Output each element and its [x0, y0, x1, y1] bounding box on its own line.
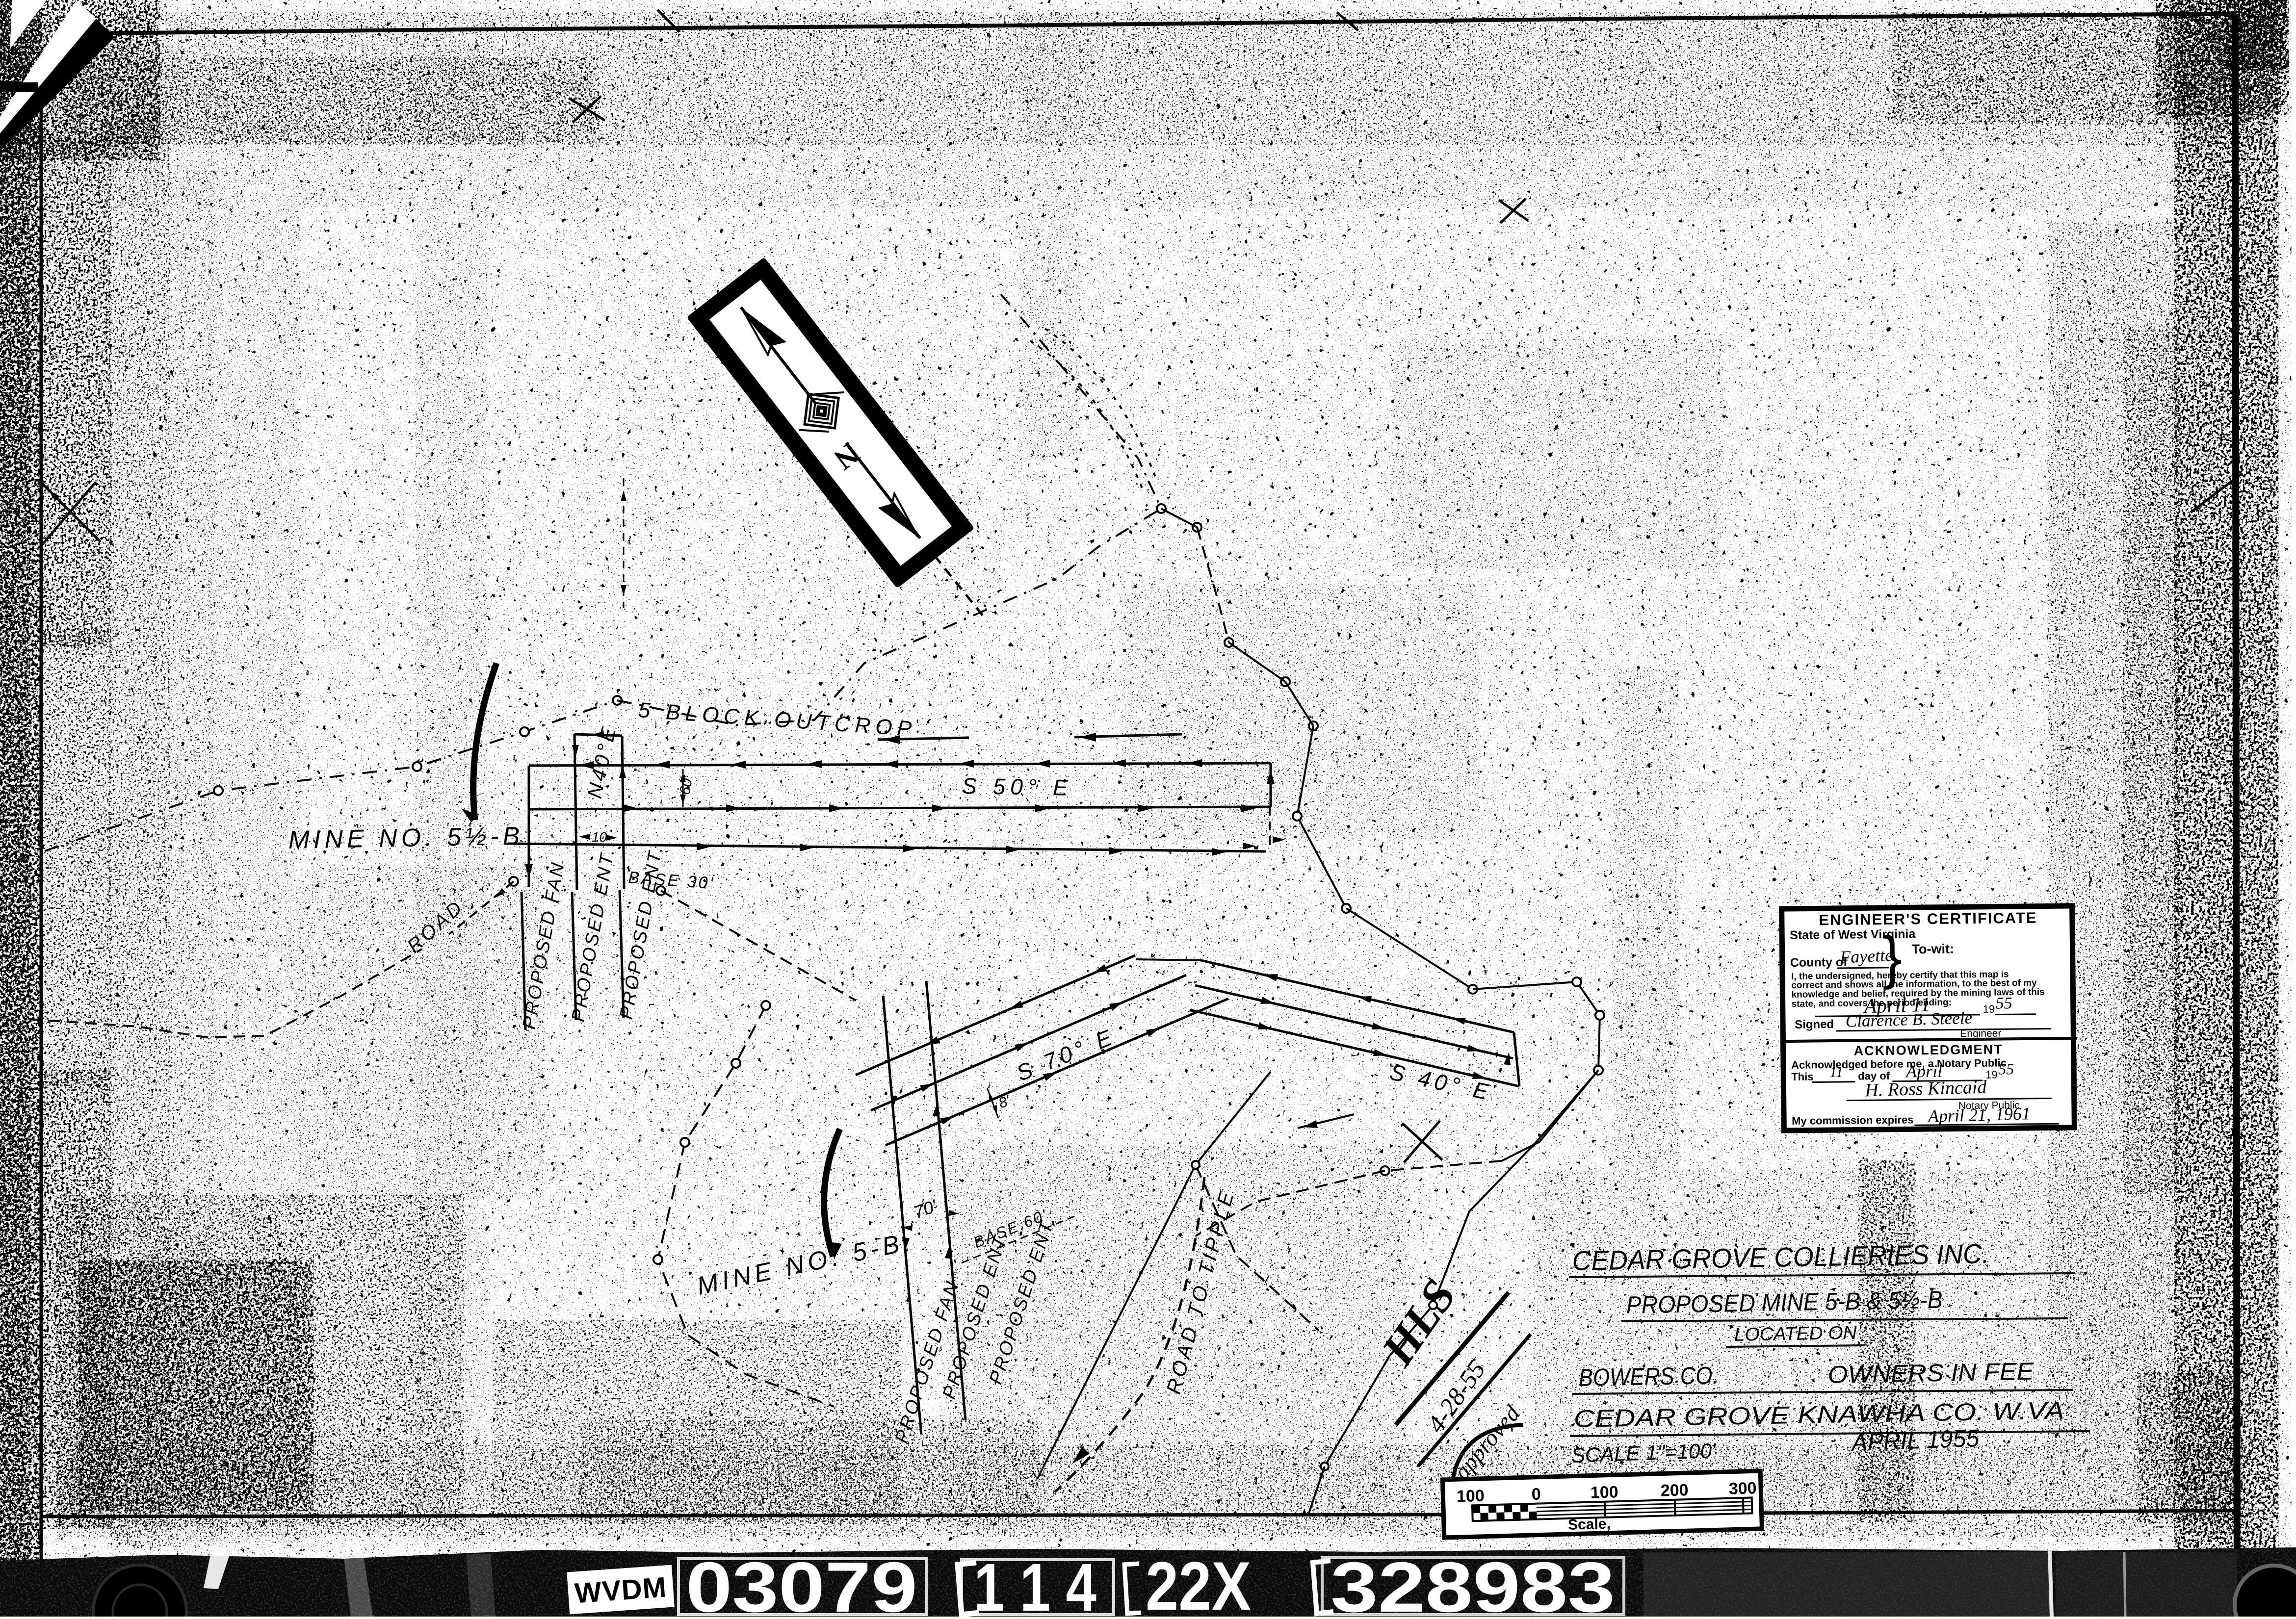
svg-text:S 50° E: S 50° E [962, 773, 1073, 800]
svg-text:0: 0 [1531, 1485, 1541, 1504]
svg-text:PROPOSED MINE 5-B & 5½-B: PROPOSED MINE 5-B & 5½-B [1626, 1286, 1943, 1319]
svg-text:55: 55 [1996, 994, 2012, 1012]
svg-text:Signed: Signed [1795, 1018, 1834, 1031]
svg-text:19: 19 [1985, 1069, 1998, 1081]
svg-text:60: 60 [677, 777, 695, 796]
svg-text:BOWERS CO.: BOWERS CO. [1578, 1362, 1719, 1391]
svg-text:328983: 328983 [1331, 1547, 1615, 1617]
svg-text:Acknowledged before me, a Nota: Acknowledged before me, a Notary Public [1791, 1056, 2007, 1071]
svg-text:My commission expires: My commission expires [1792, 1113, 1913, 1127]
svg-text:April 21, 1961: April 21, 1961 [1927, 1104, 2031, 1126]
svg-text:200: 200 [1660, 1481, 1689, 1500]
svg-text:11: 11 [1829, 1064, 1843, 1080]
svg-text:300: 300 [1728, 1479, 1757, 1498]
svg-text:100: 100 [1456, 1487, 1485, 1506]
svg-text:22X: 22X [1146, 1547, 1251, 1617]
svg-text:H. Ross Kincaid: H. Ross Kincaid [1864, 1077, 1987, 1101]
svg-text:ACKNOWLEDGMENT: ACKNOWLEDGMENT [1854, 1042, 2003, 1058]
svg-text:ENGINEER'S CERTIFICATE: ENGINEER'S CERTIFICATE [1819, 909, 2037, 929]
svg-text:10: 10 [592, 829, 607, 845]
svg-text:WVDM: WVDM [574, 1571, 668, 1610]
svg-text:This: This [1791, 1070, 1813, 1082]
svg-text:Engineer: Engineer [1960, 1028, 2001, 1039]
svg-text:MINE NO. 5½-B: MINE NO. 5½-B [288, 822, 524, 854]
svg-text:OWNERS IN FEE: OWNERS IN FEE [1827, 1358, 2035, 1388]
svg-text:Scale,: Scale, [1568, 1516, 1611, 1533]
svg-text:APRIL 1955: APRIL 1955 [1850, 1424, 1980, 1456]
svg-text:To-wit:: To-wit: [1911, 941, 1954, 956]
svg-text:Fayette: Fayette [1839, 945, 1893, 967]
svg-text:LOCATED ON: LOCATED ON [1734, 1323, 1857, 1345]
svg-text:03079: 03079 [686, 1547, 917, 1617]
svg-text:100: 100 [1590, 1483, 1618, 1502]
svg-text:1 1 4: 1 1 4 [974, 1550, 1096, 1617]
svg-text:19: 19 [1983, 1003, 1995, 1015]
svg-text:Clarence B. Steele: Clarence B. Steele [1845, 1008, 1972, 1031]
svg-text:55: 55 [1998, 1060, 2014, 1078]
